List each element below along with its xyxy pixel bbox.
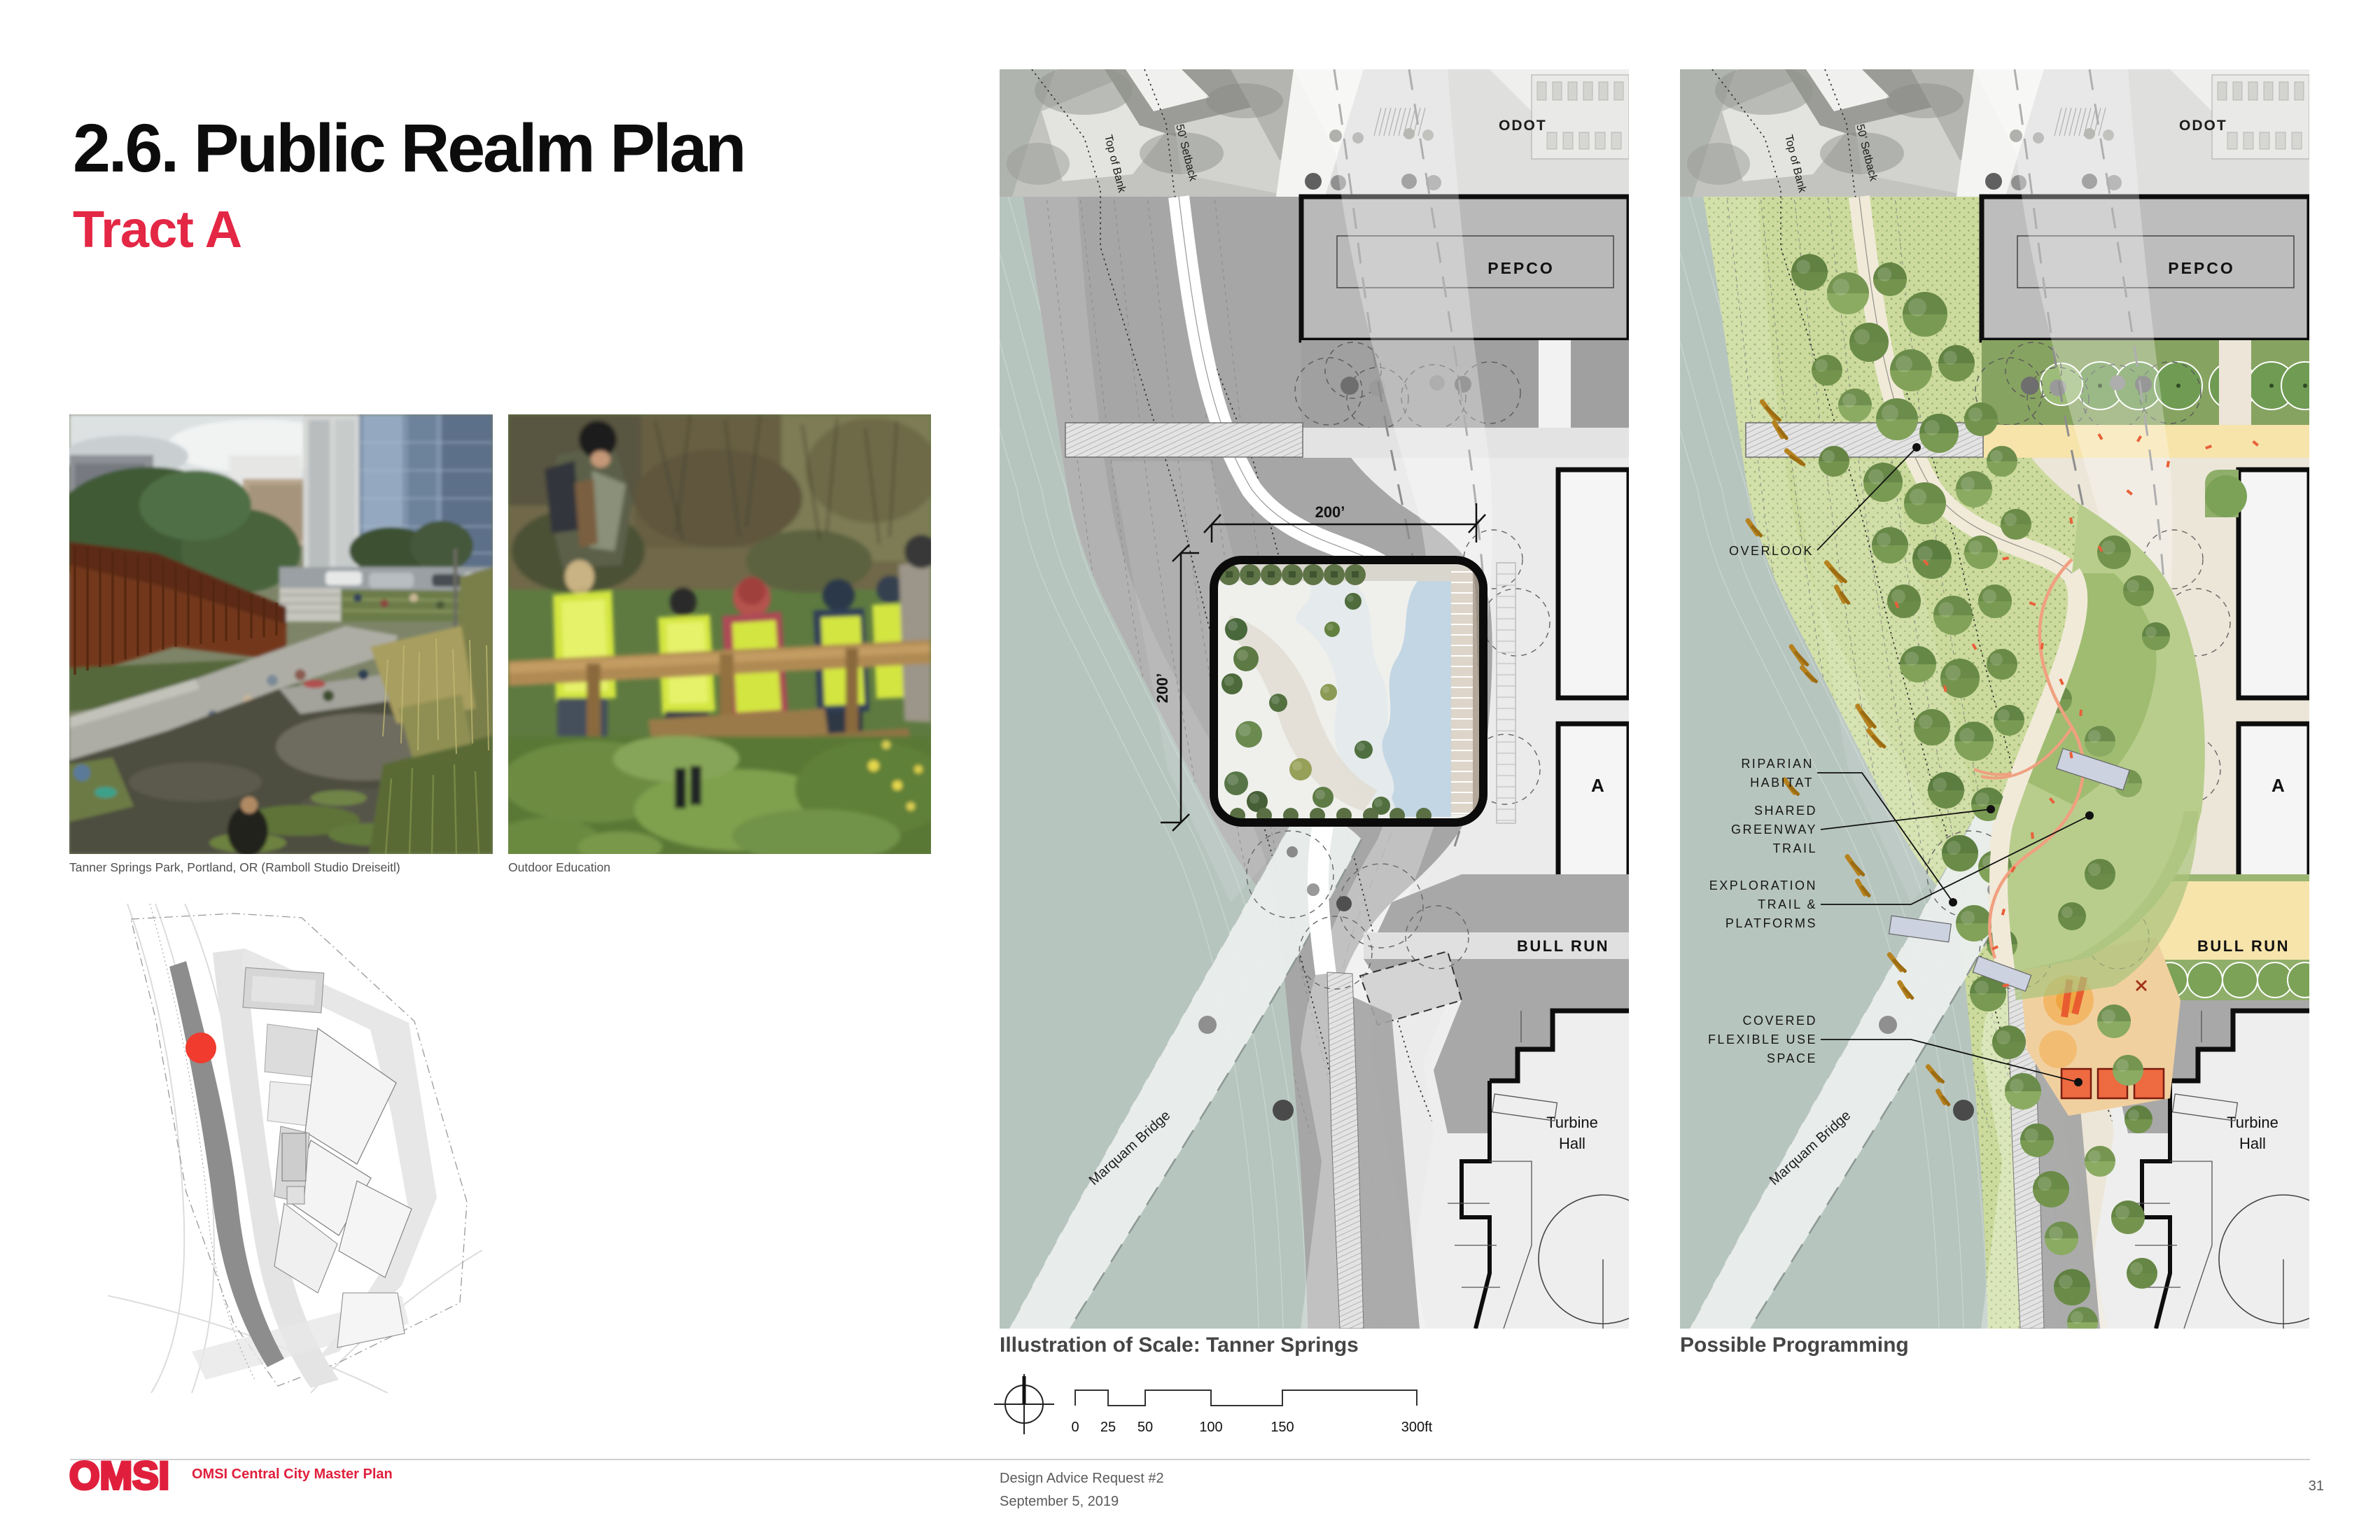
svg-text:25: 25 [1100, 1420, 1116, 1435]
svg-text:0: 0 [1071, 1420, 1079, 1435]
svg-text:300ft: 300ft [1401, 1420, 1433, 1435]
svg-text:150: 150 [1270, 1420, 1294, 1435]
svg-text:100: 100 [1199, 1420, 1222, 1435]
svg-text:50: 50 [1137, 1420, 1153, 1435]
